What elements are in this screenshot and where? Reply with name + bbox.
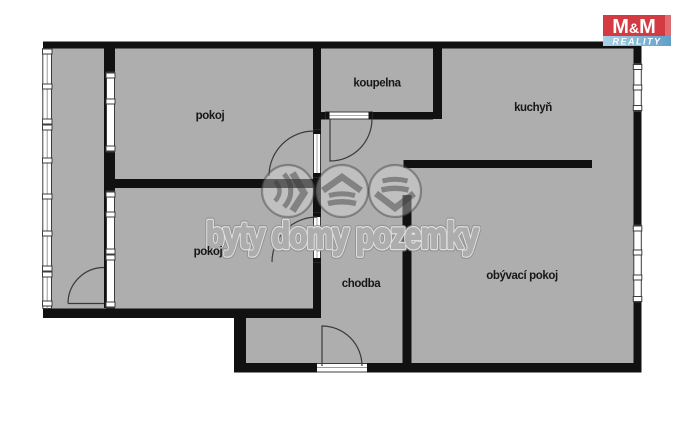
svg-text:byty domy pozemky: byty domy pozemky <box>206 215 479 256</box>
svg-text:pokoj: pokoj <box>194 246 223 258</box>
svg-text:REALITY: REALITY <box>612 37 661 47</box>
svg-text:koupelna: koupelna <box>353 78 401 90</box>
svg-text:obývací pokoj: obývací pokoj <box>486 270 558 282</box>
svg-text:pokoj: pokoj <box>196 110 225 122</box>
svg-text:kuchyň: kuchyň <box>514 102 552 114</box>
svg-text:M&M: M&M <box>612 16 655 38</box>
svg-text:chodba: chodba <box>342 278 381 290</box>
